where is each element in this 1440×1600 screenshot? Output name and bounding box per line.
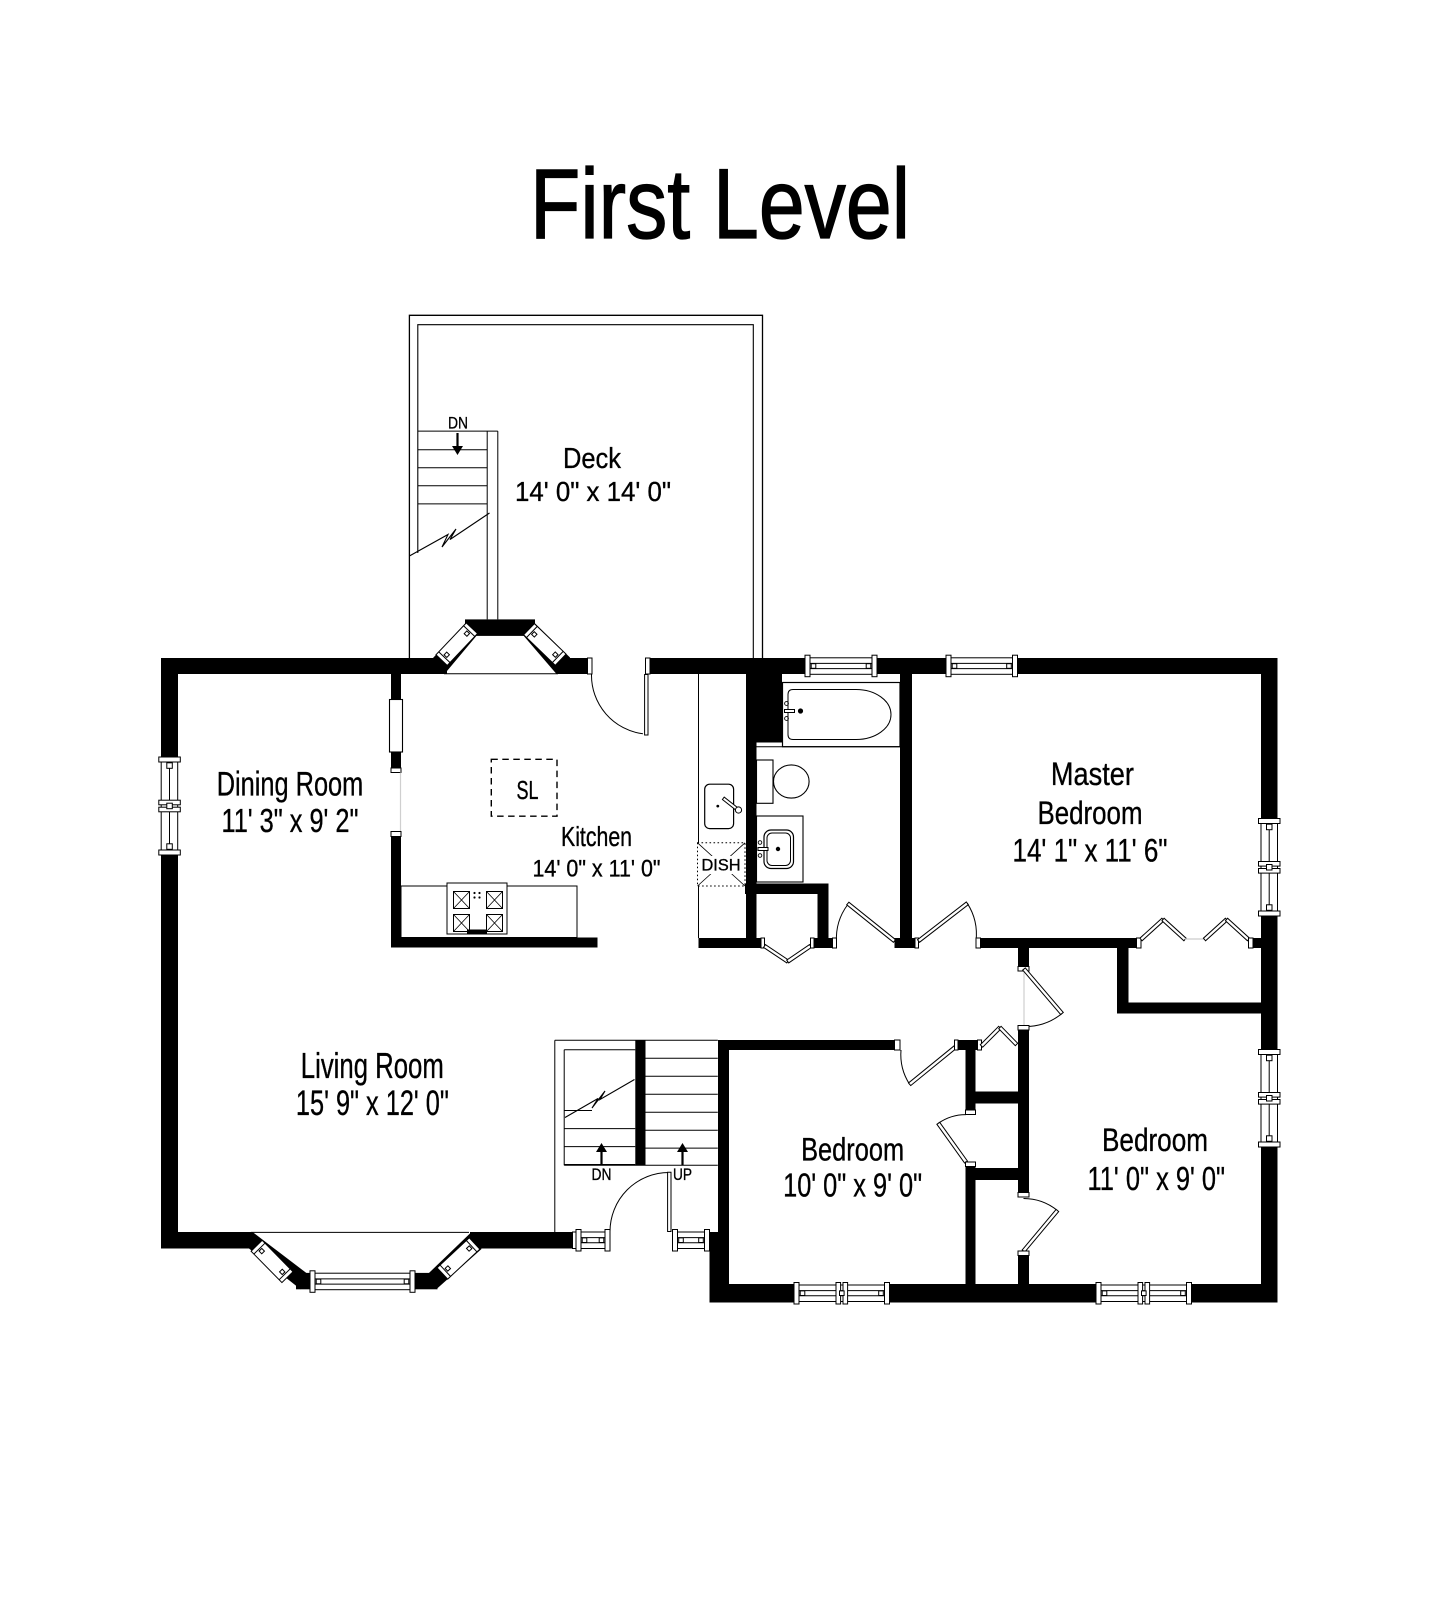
svg-text:11' 0" x 9' 0": 11' 0" x 9' 0" — [1088, 1160, 1226, 1197]
svg-text:Bedroom: Bedroom — [1102, 1122, 1208, 1158]
svg-text:Deck: Deck — [563, 443, 621, 475]
svg-text:Kitchen: Kitchen — [561, 821, 632, 852]
svg-text:14' 0" x 11' 0": 14' 0" x 11' 0" — [533, 856, 661, 883]
svg-text:14' 1" x 11' 6": 14' 1" x 11' 6" — [1013, 833, 1168, 869]
svg-text:First Level: First Level — [530, 148, 910, 259]
svg-text:Bedroom: Bedroom — [801, 1132, 904, 1168]
svg-text:SL: SL — [517, 777, 539, 805]
svg-text:DN: DN — [448, 414, 468, 433]
svg-text:14' 0" x 14' 0": 14' 0" x 14' 0" — [515, 476, 671, 507]
svg-text:11' 3" x 9' 2": 11' 3" x 9' 2" — [222, 802, 359, 839]
svg-text:Bedroom: Bedroom — [1038, 795, 1143, 831]
svg-text:15' 9" x 12' 0": 15' 9" x 12' 0" — [296, 1084, 449, 1123]
svg-text:10' 0" x 9' 0": 10' 0" x 9' 0" — [783, 1167, 922, 1204]
svg-text:Dining Room: Dining Room — [217, 765, 364, 803]
svg-text:Master: Master — [1051, 756, 1134, 792]
svg-text:Living Room: Living Room — [301, 1045, 444, 1086]
svg-text:UP: UP — [673, 1165, 692, 1184]
svg-text:DN: DN — [592, 1165, 612, 1184]
svg-text:DISH: DISH — [702, 856, 741, 875]
